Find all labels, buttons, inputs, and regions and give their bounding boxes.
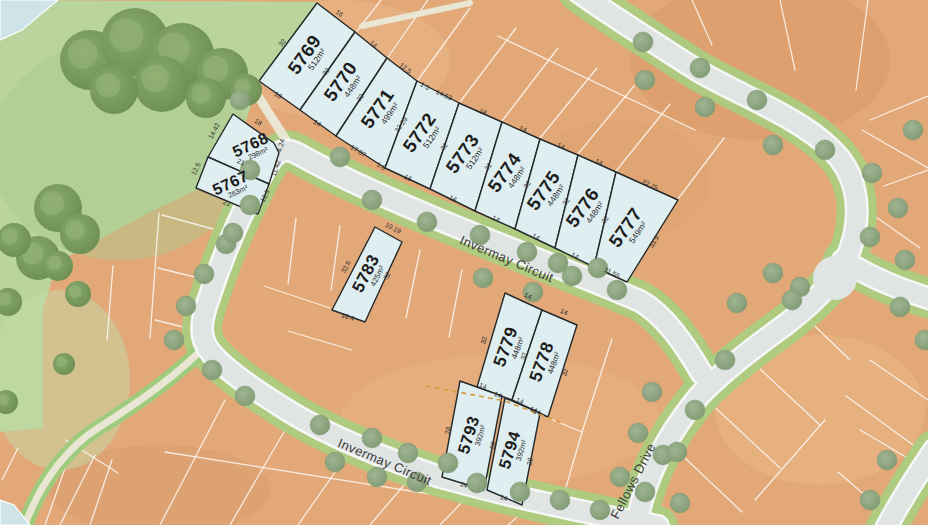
tree-icon xyxy=(325,452,345,472)
tree-icon xyxy=(223,223,243,243)
tree-icon xyxy=(362,190,382,210)
tree-icon xyxy=(628,423,648,443)
tree-icon xyxy=(550,490,570,510)
tree-icon xyxy=(747,90,767,110)
tree-icon xyxy=(670,493,690,513)
tree-icon xyxy=(367,467,387,487)
tree-icon xyxy=(763,135,783,155)
tree-icon xyxy=(330,147,350,167)
tree-icon xyxy=(633,32,653,52)
tree-icon xyxy=(607,280,627,300)
tree-icon xyxy=(862,163,882,183)
masterplan-map: 5769512m²163216325770448m²1432145771499m… xyxy=(0,0,928,525)
tree-icon xyxy=(230,90,250,110)
tree-icon xyxy=(642,382,662,402)
tree-icon xyxy=(890,297,910,317)
tree-icon xyxy=(763,263,783,283)
tree-icon xyxy=(164,330,184,350)
tree-icon xyxy=(860,227,880,247)
map-canvas: 5769512m²163216325770448m²1432145771499m… xyxy=(0,0,928,525)
tree-icon xyxy=(695,97,715,117)
tree-icon xyxy=(715,350,735,370)
tree-icon xyxy=(903,120,923,140)
tree-icon xyxy=(667,442,687,462)
tree-icon xyxy=(895,250,915,270)
tree-icon xyxy=(860,490,880,510)
tree-icon xyxy=(202,360,222,380)
tree-icon xyxy=(782,290,802,310)
tree-icon xyxy=(815,140,835,160)
tree-icon xyxy=(194,264,214,284)
tree-icon xyxy=(690,58,710,78)
tree-icon xyxy=(727,293,747,313)
tree-icon xyxy=(510,482,530,502)
tree-icon xyxy=(590,500,610,520)
tree-icon xyxy=(417,212,437,232)
tree-icon xyxy=(888,198,908,218)
tree-icon xyxy=(438,453,458,473)
tree-icon xyxy=(235,386,255,406)
tree-icon xyxy=(877,450,897,470)
tree-icon xyxy=(473,268,493,288)
tree-icon xyxy=(310,415,330,435)
tree-icon xyxy=(240,195,260,215)
tree-icon xyxy=(176,296,196,316)
tree-icon xyxy=(685,400,705,420)
tree-icon xyxy=(467,473,487,493)
tree-icon xyxy=(635,70,655,90)
